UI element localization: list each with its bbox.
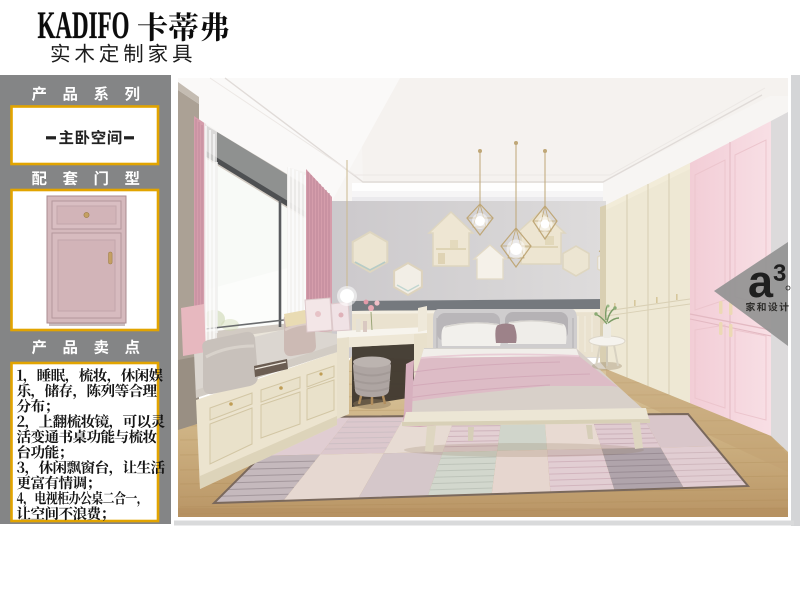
svg-text:3: 3: [773, 260, 786, 287]
svg-text:a: a: [748, 256, 774, 307]
